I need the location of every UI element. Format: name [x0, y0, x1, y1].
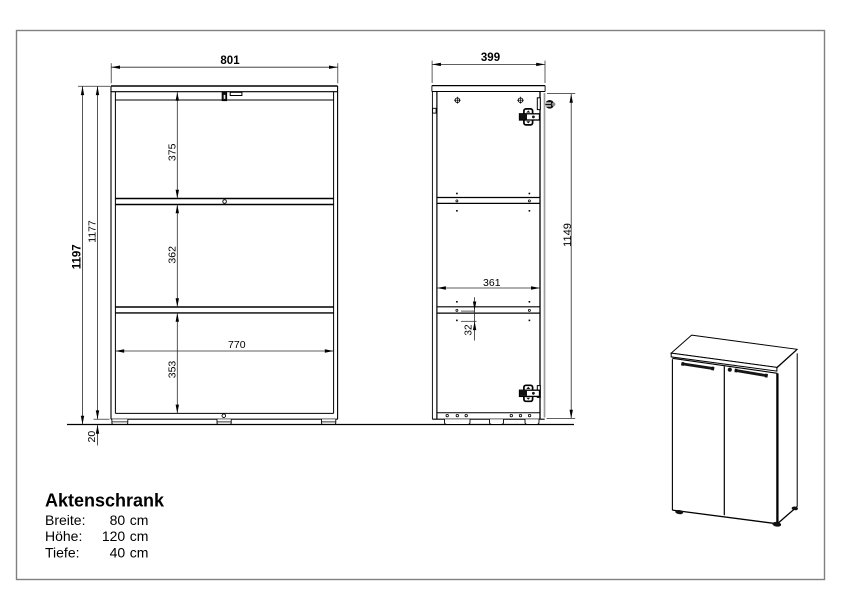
svg-text:399: 399 — [481, 52, 500, 64]
svg-text:80: 80 — [110, 512, 126, 528]
svg-text:120: 120 — [102, 528, 126, 544]
svg-text:362: 362 — [166, 246, 178, 264]
svg-text:1149: 1149 — [562, 223, 574, 247]
svg-text:20: 20 — [86, 431, 98, 443]
svg-text:40: 40 — [110, 545, 126, 561]
svg-text:1177: 1177 — [87, 220, 99, 243]
svg-text:Tiefe:: Tiefe: — [45, 545, 80, 561]
svg-text:32: 32 — [463, 324, 474, 336]
svg-text:801: 801 — [220, 55, 240, 67]
svg-text:353: 353 — [166, 361, 178, 379]
svg-text:375: 375 — [166, 143, 178, 161]
svg-text:cm: cm — [130, 528, 149, 544]
svg-text:770: 770 — [228, 339, 246, 351]
svg-text:cm: cm — [130, 545, 149, 561]
svg-text:Breite:: Breite: — [45, 512, 85, 528]
svg-text:1197: 1197 — [71, 244, 83, 269]
svg-text:cm: cm — [130, 512, 149, 528]
svg-text:361: 361 — [483, 277, 501, 289]
svg-text:Aktenschrank: Aktenschrank — [45, 491, 165, 511]
svg-text:Höhe:: Höhe: — [45, 528, 82, 544]
